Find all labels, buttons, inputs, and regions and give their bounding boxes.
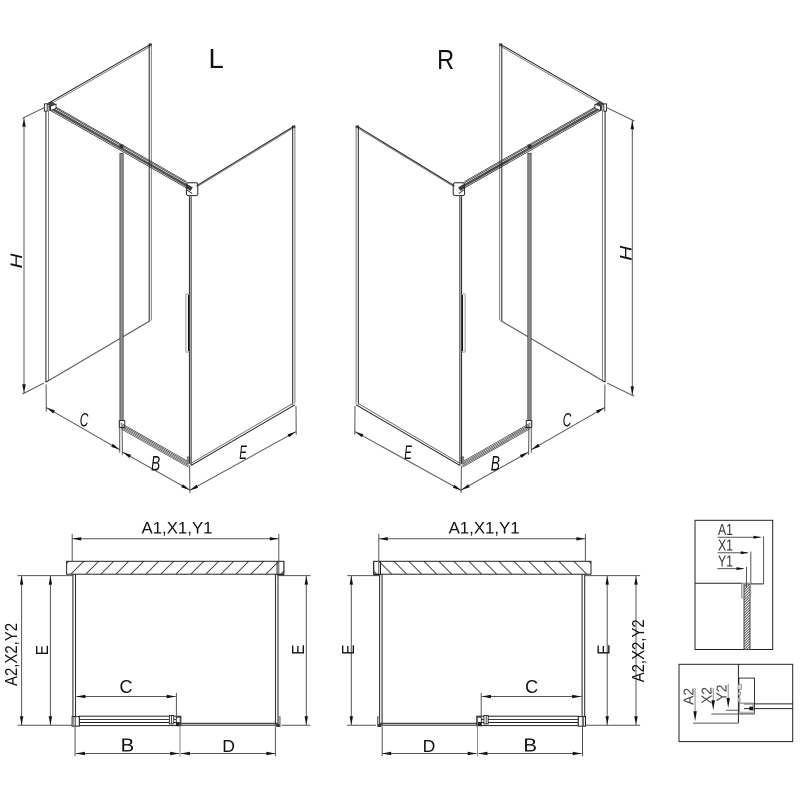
svg-text:E: E [32, 645, 52, 655]
svg-text:E: E [594, 644, 614, 654]
svg-text:C: C [563, 410, 572, 432]
svg-text:A1: A1 [718, 522, 733, 539]
svg-text:E: E [288, 644, 308, 654]
svg-text:R: R [437, 44, 454, 75]
svg-text:C: C [525, 677, 538, 697]
svg-text:C: C [80, 410, 89, 432]
svg-text:B: B [523, 735, 537, 755]
svg-text:A2,X2,Y2: A2,X2,Y2 [628, 619, 648, 682]
svg-text:H: H [618, 246, 636, 261]
svg-text:E: E [404, 443, 412, 464]
svg-text:B: B [121, 735, 135, 755]
svg-text:E: E [338, 644, 358, 654]
svg-text:Y1: Y1 [718, 554, 733, 571]
svg-text:L: L [209, 43, 224, 74]
svg-text:X1: X1 [718, 538, 733, 555]
svg-text:A2,X2,Y2: A2,X2,Y2 [1, 623, 21, 686]
svg-text:A1,X1,Y1: A1,X1,Y1 [449, 520, 520, 538]
svg-text:D: D [222, 736, 235, 756]
svg-text:C: C [120, 677, 133, 697]
svg-text:B: B [491, 453, 500, 476]
svg-text:A1,X1,Y1: A1,X1,Y1 [142, 520, 213, 538]
svg-text:H: H [8, 253, 26, 268]
svg-text:E: E [239, 443, 247, 464]
svg-text:B: B [151, 453, 160, 476]
svg-text:D: D [423, 736, 436, 756]
